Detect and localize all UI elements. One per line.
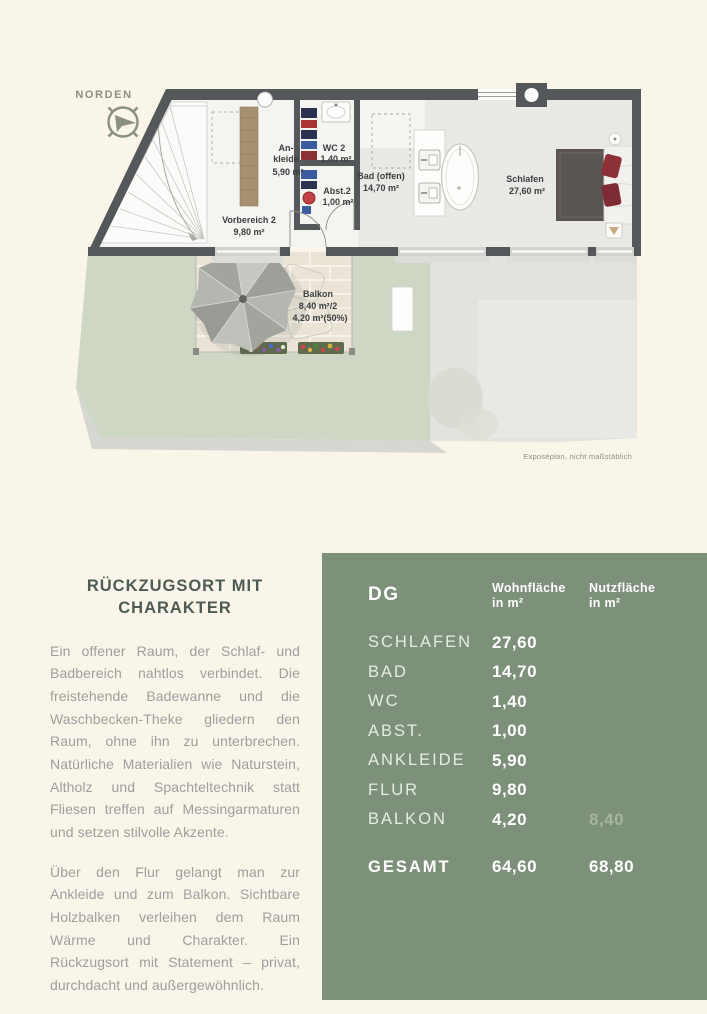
- table-row: ABST. 1,00: [368, 717, 688, 747]
- room-area-bad: 14,70 m²: [363, 183, 399, 193]
- table-row: BALKON 4,20 8,40: [368, 805, 688, 835]
- floor-plan-drawing: An- kleide 5,90 m² WC 2 1,40 m² Abst.2 1…: [0, 0, 707, 480]
- room-label-vorbereich: Vorbereich 2: [222, 215, 276, 225]
- room-label-schlafen: Schlafen: [506, 174, 544, 184]
- bush: [458, 408, 498, 440]
- page-title-line1: RÜCKZUGSORT MIT: [87, 577, 263, 595]
- expose-page: { "colors": { "page_bg": "#f9f5e8", "pan…: [0, 0, 707, 1000]
- total-nutzflaeche: 68,80: [589, 857, 688, 877]
- garden-areas: [76, 252, 637, 453]
- col-header-line: Nutzfläche: [589, 581, 655, 596]
- table-total-row: GESAMT 64,60 68,80: [368, 853, 688, 883]
- row-label: WC: [368, 692, 492, 711]
- north-compass: NORDEN: [75, 89, 137, 137]
- room-area-balkon: 4,20 m²(50%): [292, 313, 347, 323]
- room-label-wc: WC 2: [323, 143, 346, 153]
- total-label: GESAMT: [368, 858, 492, 877]
- vent-box: [392, 287, 413, 331]
- row-label: BAD: [368, 663, 492, 682]
- room-label-ankleide: An-: [279, 143, 294, 153]
- bathtub: [442, 144, 479, 210]
- room-label-abstellraum: Abst.2: [323, 186, 351, 196]
- plan-caption: Exposéplan, nicht maßstäblich: [523, 452, 632, 461]
- table-row: SCHLAFEN 27,60: [368, 628, 688, 658]
- row-wohnflaeche: 14,70: [492, 662, 589, 682]
- row-wohnflaeche: 9,80: [492, 780, 589, 800]
- row-label: SCHLAFEN: [368, 633, 492, 652]
- table-header: DG Wohnfläche in m² Nutzfläche in m²: [368, 581, 655, 612]
- row-wohnflaeche: 1,00: [492, 721, 589, 741]
- row-nutzflaeche: 8,40: [589, 810, 688, 830]
- washbasin: [419, 183, 440, 203]
- area-table-panel: DG Wohnfläche in m² Nutzfläche in m² SCH…: [322, 553, 707, 1000]
- intro-paragraph: Über den Flur gelangt man zur Ankleide u…: [50, 861, 300, 997]
- row-label: ANKLEIDE: [368, 751, 492, 770]
- row-wohnflaeche: 27,60: [492, 633, 589, 653]
- col-header-line: Wohnfläche: [492, 581, 589, 596]
- floor-plan: An- kleide 5,90 m² WC 2 1,40 m² Abst.2 1…: [0, 0, 707, 480]
- col-header-wohnflaeche: Wohnfläche in m²: [492, 581, 589, 612]
- total-wohnflaeche: 64,60: [492, 857, 589, 877]
- room-area-balkon: 8,40 m²/2: [299, 301, 338, 311]
- page-title: RÜCKZUGSORT MIT CHARAKTER: [50, 576, 300, 620]
- page-title-line2: CHARAKTER: [118, 599, 232, 617]
- table-row: ANKLEIDE 5,90: [368, 746, 688, 776]
- col-header-line: in m²: [589, 596, 655, 611]
- table-row: FLUR 9,80: [368, 776, 688, 806]
- table-row: BAD 14,70: [368, 658, 688, 688]
- col-header-line: in m²: [492, 596, 589, 611]
- chimney: [258, 92, 273, 107]
- room-area-ankleide: 5,90 m²: [272, 167, 303, 177]
- room-label-balkon: Balkon: [303, 289, 333, 299]
- norden-label: NORDEN: [75, 89, 132, 101]
- row-wohnflaeche: 4,20: [492, 810, 589, 830]
- room-area-wc: 1,40 m²: [320, 154, 351, 164]
- row-label: BALKON: [368, 810, 492, 829]
- intro-text: RÜCKZUGSORT MIT CHARAKTER Ein offener Ra…: [50, 576, 300, 1014]
- col-header-nutzflaeche: Nutzfläche in m²: [589, 581, 655, 612]
- room-area-vorbereich: 9,80 m²: [233, 227, 264, 237]
- floor-label: DG: [368, 581, 492, 606]
- table-body: SCHLAFEN 27,60 BAD 14,70 WC 1,40 ABST. 1…: [368, 628, 688, 882]
- washbasin: [419, 150, 440, 170]
- window-sills: [212, 256, 637, 263]
- room-label-ankleide: kleide: [273, 154, 299, 164]
- row-label: FLUR: [368, 781, 492, 800]
- room-label-bad: Bad (offen): [357, 171, 405, 181]
- room-area-abstellraum: 1,00 m²: [322, 197, 353, 207]
- row-wohnflaeche: 5,90: [492, 751, 589, 771]
- table-row: WC 1,40: [368, 687, 688, 717]
- row-label: ABST.: [368, 722, 492, 741]
- row-wohnflaeche: 1,40: [492, 692, 589, 712]
- intro-paragraph: Ein offener Raum, der Schlaf- und Badber…: [50, 640, 300, 844]
- room-area-schlafen: 27,60 m²: [509, 186, 545, 196]
- compass-icon: [109, 108, 138, 137]
